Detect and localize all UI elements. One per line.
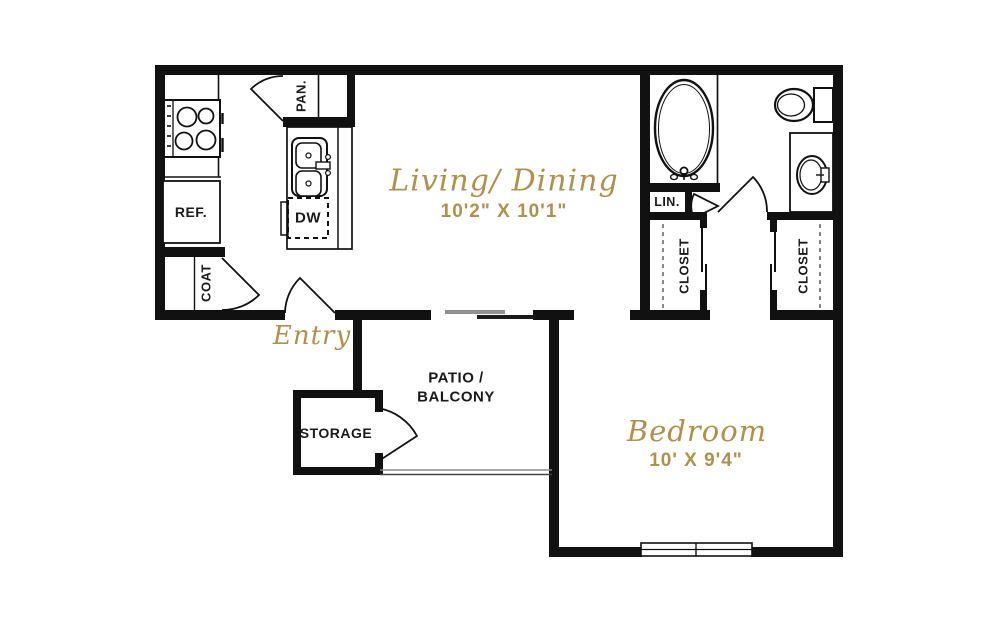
entry-door-swing-icon	[285, 278, 335, 313]
bathtub-icon	[655, 75, 718, 183]
kitchen-sink-icon	[292, 138, 330, 196]
closet-left-label: CLOSET	[677, 238, 692, 294]
pantry-label: PAN.	[294, 80, 309, 112]
bathroom-door-swing-icon	[718, 177, 767, 212]
linen-closet-label: LIN.	[654, 195, 680, 209]
dishwasher-label: DW	[295, 210, 321, 227]
closet-sliding-panels	[702, 228, 775, 308]
closet-right-label: CLOSET	[796, 238, 811, 294]
patio-label-line2: BALCONY	[417, 388, 495, 407]
sliding-door-icon	[445, 310, 535, 319]
coat-closet-label: COAT	[199, 264, 214, 302]
pantry-door-swing-icon	[251, 76, 283, 121]
entry-label: Entry	[273, 321, 351, 351]
patio-label-line1: PATIO /	[417, 369, 495, 388]
bedroom-label: Bedroom	[627, 414, 767, 448]
stove-icon	[164, 100, 223, 157]
toilet-icon	[775, 88, 833, 122]
living-dining-dimensions: 10'2" X 10'1"	[441, 201, 568, 223]
storage-label: STORAGE	[300, 425, 372, 441]
window-icon	[641, 543, 752, 556]
bathroom-sink-icon	[797, 156, 829, 194]
railing-icon	[380, 470, 552, 475]
refrigerator-label: REF.	[175, 204, 207, 220]
living-dining-label: Living/ Dining	[389, 164, 618, 199]
patio-balcony-label: PATIO / BALCONY	[417, 369, 495, 407]
coat-door-swing-icon	[222, 258, 259, 310]
bedroom-dimensions: 10' X 9'4"	[649, 450, 743, 472]
floor-plan: Living/ Dining 10'2" X 10'1" Bedroom 10'…	[0, 0, 998, 626]
floor-plan-drawing	[0, 0, 998, 626]
